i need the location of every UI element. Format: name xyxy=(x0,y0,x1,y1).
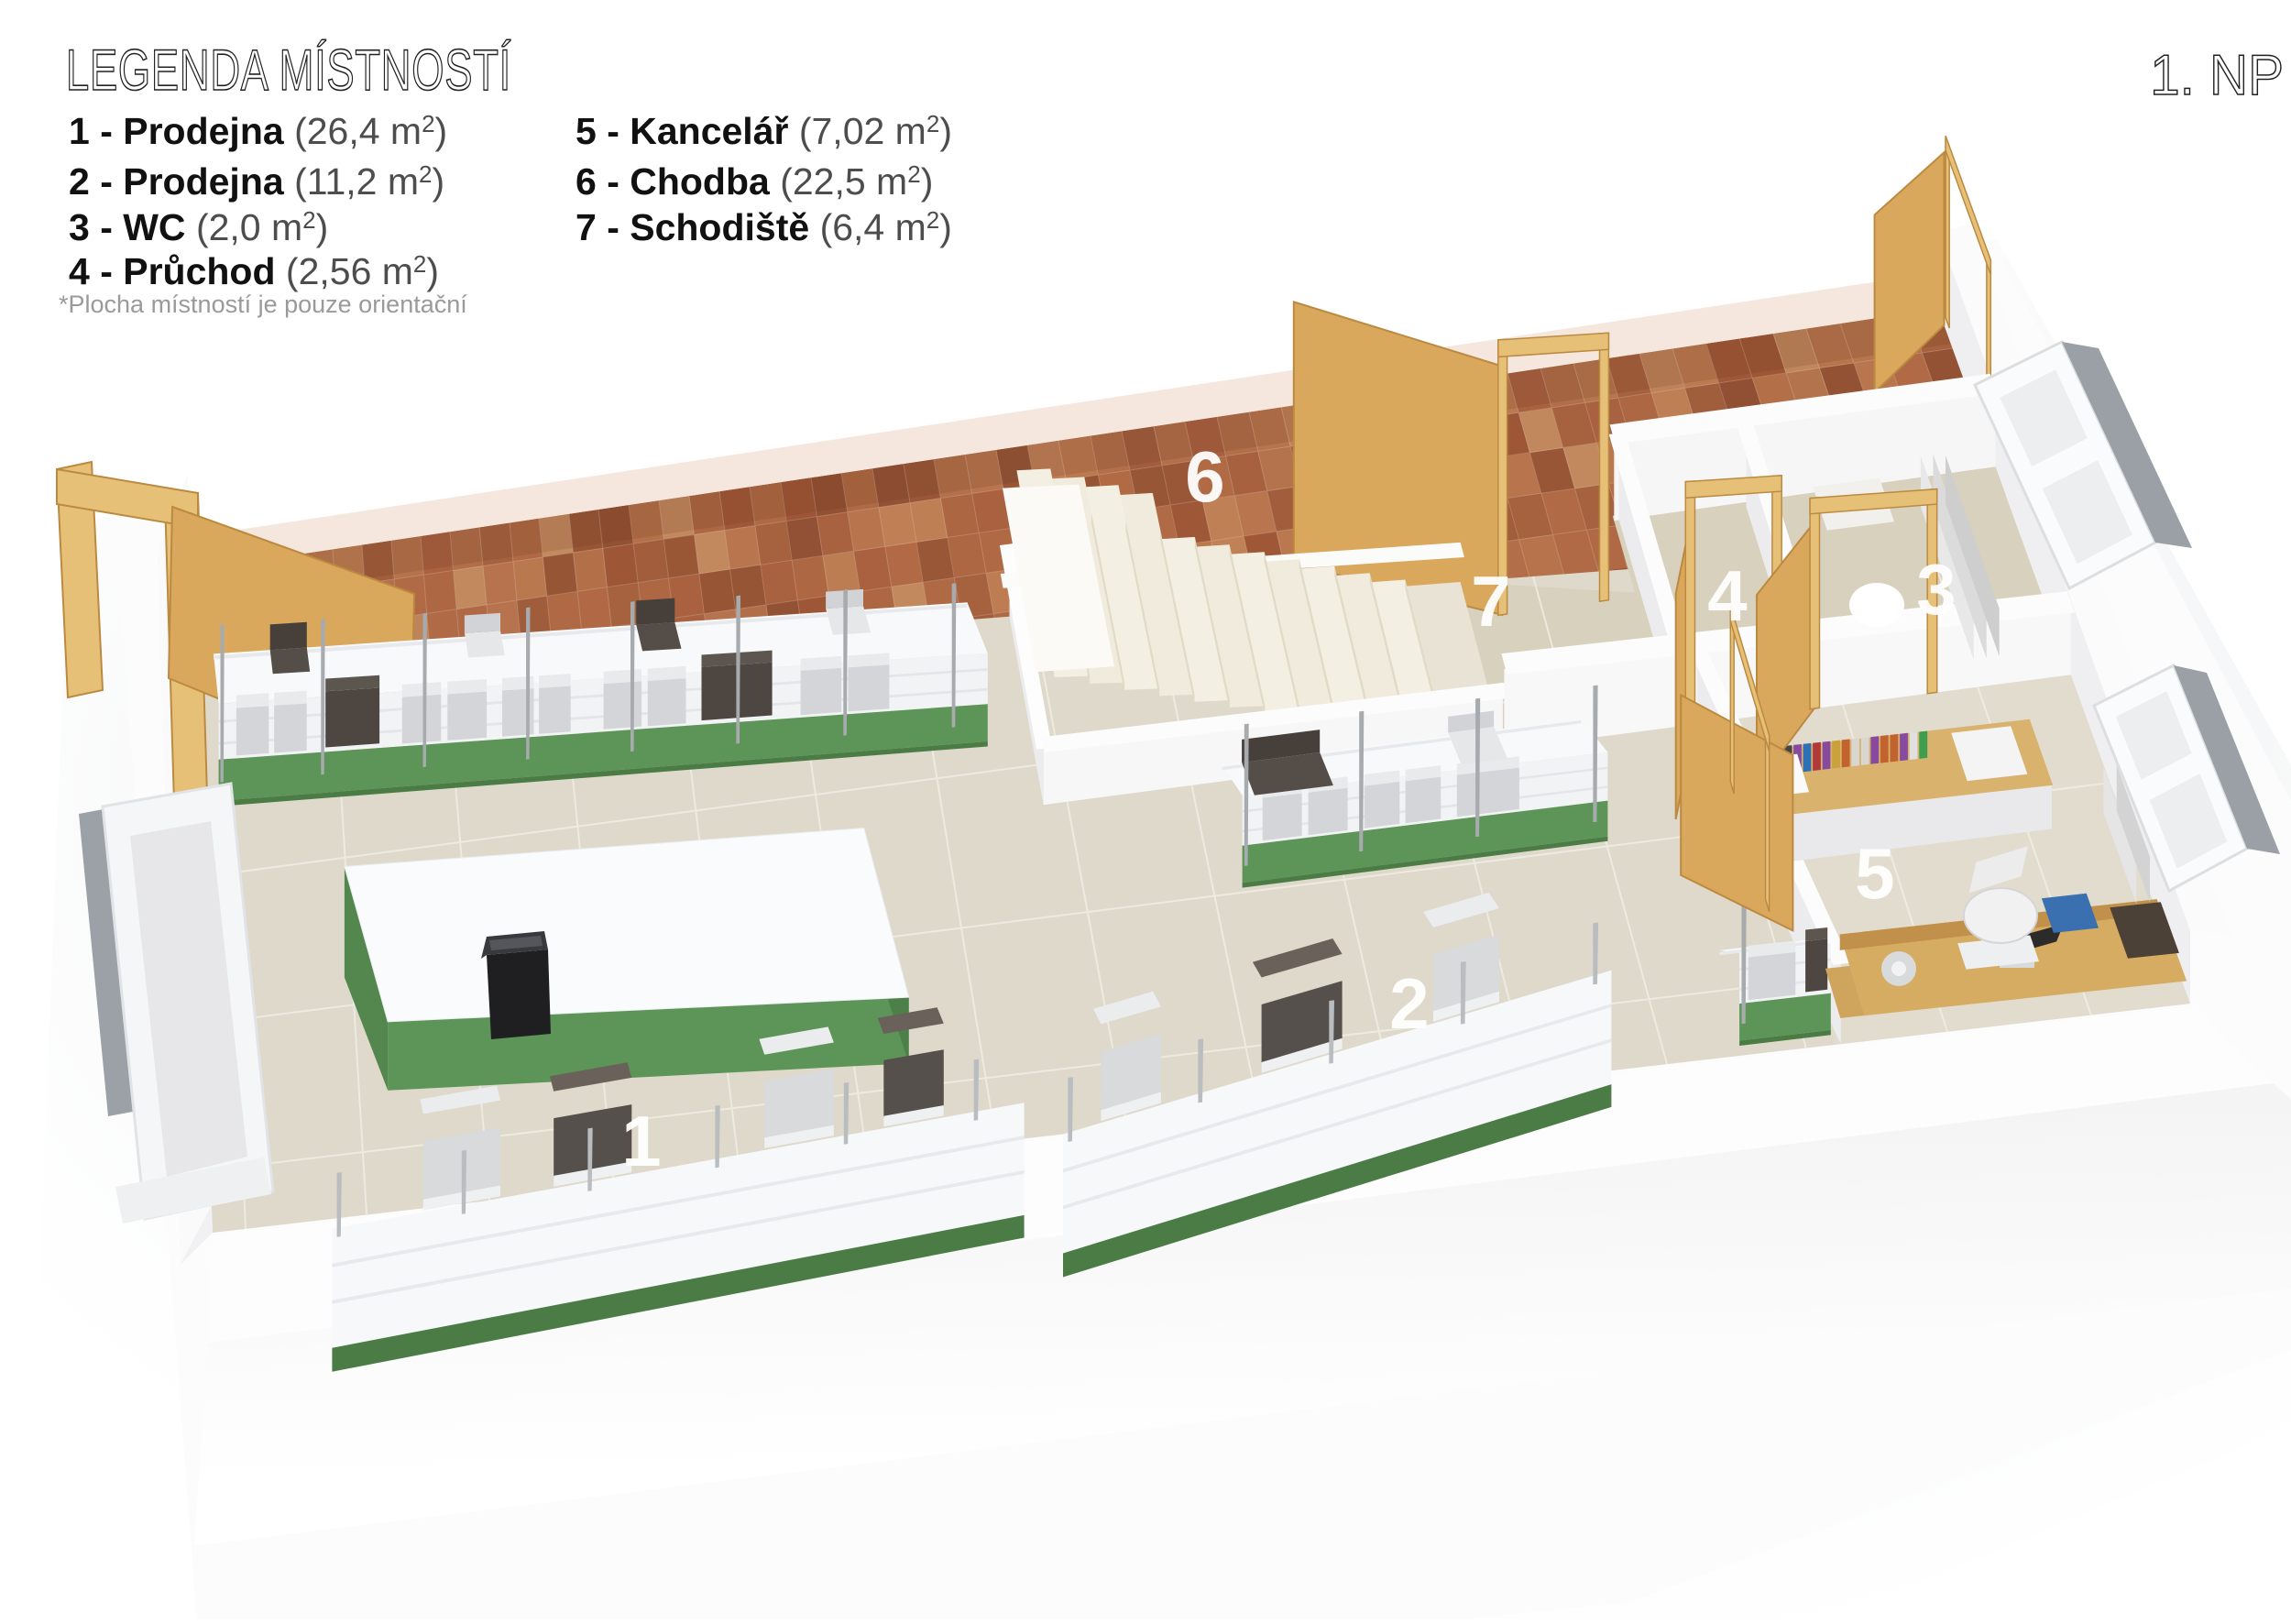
svg-text:LEGENDA MÍSTNOSTÍ: LEGENDA MÍSTNOSTÍ xyxy=(66,38,511,103)
svg-text:6: 6 xyxy=(1185,436,1224,517)
svg-text:3: 3 xyxy=(1916,549,1956,630)
svg-text:*Plocha místností je pouze ori: *Plocha místností je pouze orientační xyxy=(59,291,467,318)
svg-text:1 - Prodejna (26,4 m2): 1 - Prodejna (26,4 m2) xyxy=(69,110,447,152)
svg-text:5: 5 xyxy=(1855,833,1894,914)
svg-text:7 - Schodiště (6,4 m2): 7 - Schodiště (6,4 m2) xyxy=(575,206,952,248)
svg-text:3 - WC (2,0 m2): 3 - WC (2,0 m2) xyxy=(69,206,328,248)
svg-text:5 - Kancelář (7,02 m2): 5 - Kancelář (7,02 m2) xyxy=(575,110,952,152)
svg-text:4 - Průchod (2,56 m2): 4 - Průchod (2,56 m2) xyxy=(69,250,439,292)
svg-text:1: 1 xyxy=(621,1101,661,1181)
svg-text:2 - Prodejna (11,2 m2): 2 - Prodejna (11,2 m2) xyxy=(69,160,444,203)
svg-text:1. NP: 1. NP xyxy=(2150,43,2284,106)
svg-text:7: 7 xyxy=(1471,561,1510,642)
svg-text:4: 4 xyxy=(1707,555,1747,636)
svg-text:2: 2 xyxy=(1389,963,1429,1044)
svg-text:6 - Chodba (22,5 m2): 6 - Chodba (22,5 m2) xyxy=(575,160,933,203)
